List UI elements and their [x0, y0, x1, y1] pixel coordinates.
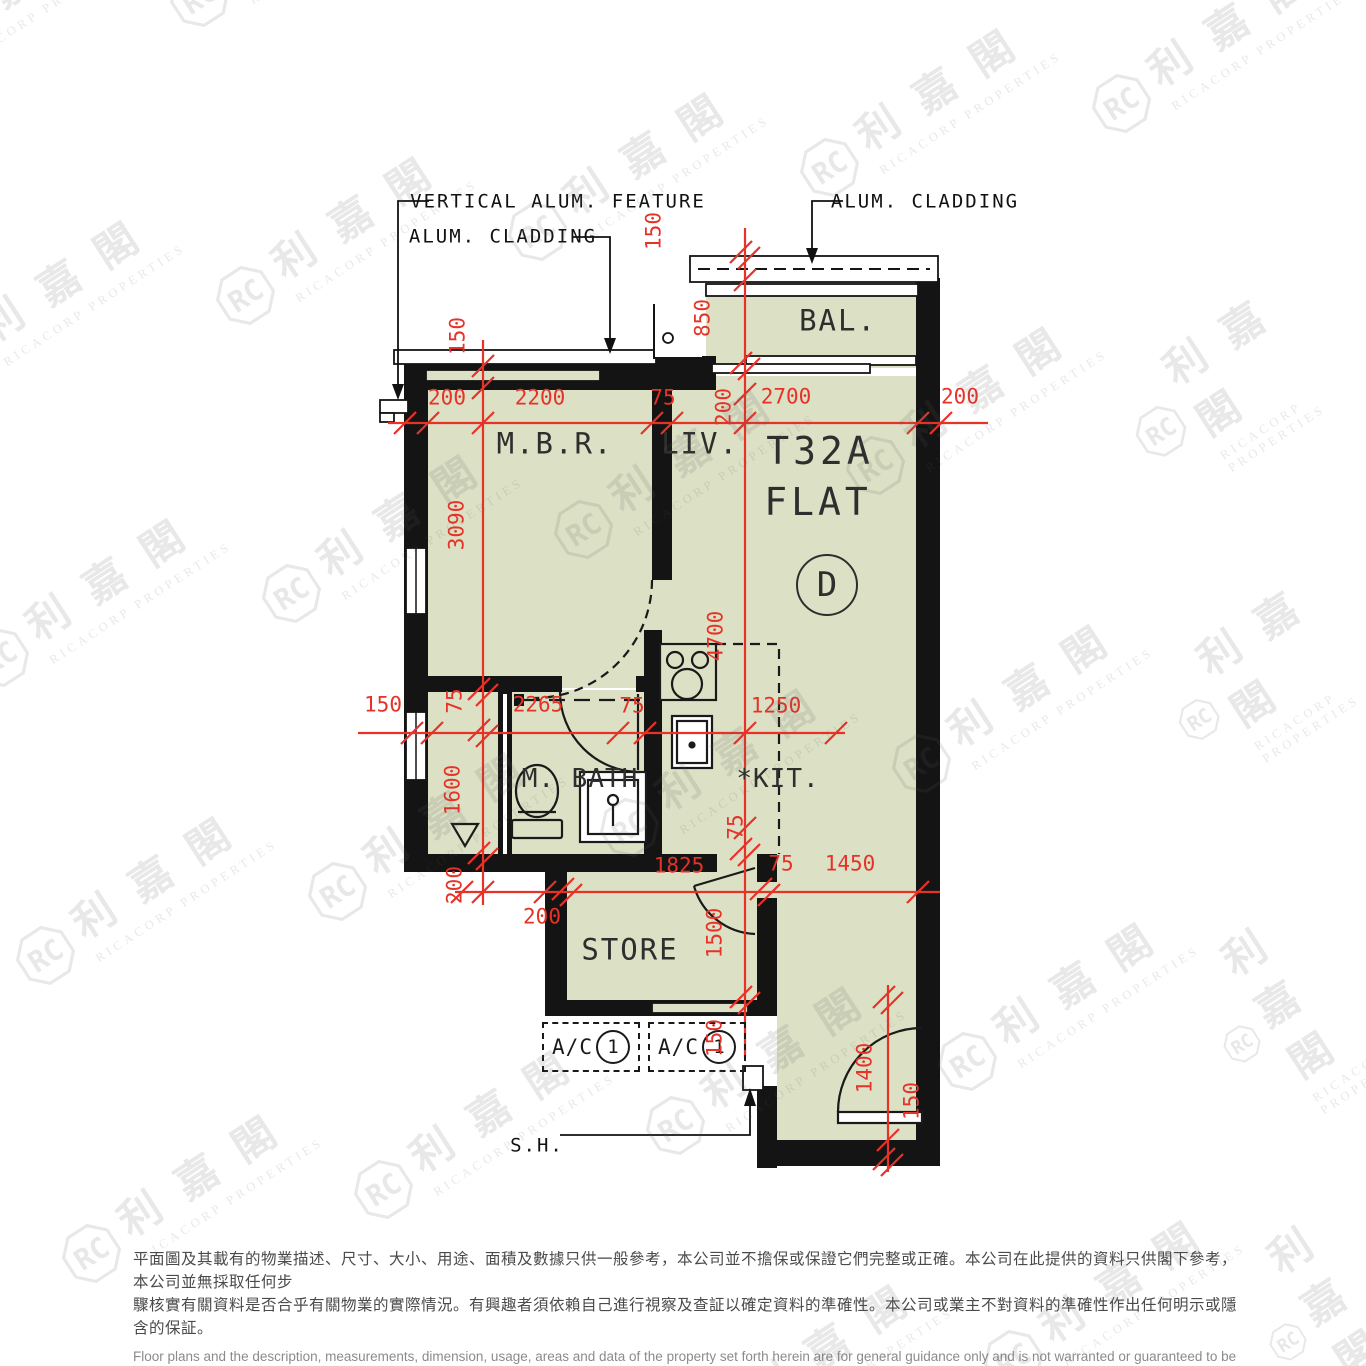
- dim-200-store: 200: [523, 907, 561, 928]
- disclaimer-zh-line1: 平面圖及其載有的物業描述、尺寸、大小、用途、面積及數據只供一般參考，本公司並不擔…: [133, 1248, 1243, 1294]
- dim-75-low: 75: [768, 854, 793, 875]
- label-sh: S.H.: [510, 1137, 564, 1156]
- wall-mbr-divider: [652, 388, 672, 580]
- dim-1600: 1600: [443, 765, 464, 816]
- wall-right-main: [916, 278, 940, 1164]
- dim-75-top: 75: [650, 388, 675, 409]
- dim-200-topmid: 200: [714, 388, 735, 426]
- unit-letter-badge: D: [796, 554, 858, 616]
- room-label-bal: BAL.: [799, 307, 877, 336]
- dim-3090: 3090: [447, 500, 468, 551]
- dim-200-lowleft: 200: [445, 866, 466, 904]
- disclaimer-en: Floor plans and the description, measure…: [133, 1347, 1243, 1366]
- dim-850-balcony: 850: [693, 299, 714, 337]
- disclaimer-zh-line2: 驟核實有關資料是否合乎有關物業的實際情況。有興趣者須依賴自己進行視察及查証以確定…: [133, 1294, 1243, 1340]
- dim-150-mid: 150: [364, 695, 402, 716]
- dim-150-top: 150: [644, 212, 665, 250]
- dim-2700: 2700: [761, 387, 812, 408]
- unit-flat-label: FLAT: [764, 483, 872, 521]
- ac-unit-2: A/C1: [648, 1022, 746, 1072]
- dim-1400: 1400: [855, 1043, 876, 1094]
- dim-1250: 1250: [751, 696, 802, 717]
- dim-1825: 1825: [654, 856, 705, 877]
- dim-150-ac: 150: [705, 1019, 726, 1057]
- dim-75-midleft: 75: [445, 688, 466, 713]
- room-label-kit: *KIT.: [736, 766, 819, 792]
- floor-plan-page: VERTICAL ALUM. FEATURE ALUM. CLADDING AL…: [0, 0, 1366, 1366]
- dim-75-kitchen: 75: [726, 814, 747, 839]
- dim-200-topright: 200: [941, 387, 979, 408]
- vertical-alum-feature-box: [380, 400, 408, 413]
- dim-4700: 4700: [706, 611, 727, 662]
- dim-75-midright: 75: [619, 696, 644, 717]
- cladding-strip: [394, 350, 656, 364]
- label-alum-cladding-left: ALUM. CLADDING: [409, 228, 597, 247]
- unit-block-label: T32A: [766, 432, 874, 470]
- ac-unit-1: A/C1: [542, 1022, 640, 1072]
- dim-200-topleft: 200: [428, 388, 466, 409]
- dim-2200: 2200: [515, 388, 566, 409]
- disclaimer: 平面圖及其載有的物業描述、尺寸、大小、用途、面積及數據只供一般參考，本公司並不擔…: [133, 1248, 1243, 1366]
- arrow-down-icon: [392, 384, 404, 400]
- wall-store-right: [757, 898, 777, 1016]
- dim-1450: 1450: [825, 854, 876, 875]
- dim-1500: 1500: [705, 908, 726, 959]
- room-label-liv: LIV.: [661, 430, 739, 459]
- dim-2265: 2265: [513, 695, 564, 716]
- label-vertical-alum-feature: VERTICAL ALUM. FEATURE: [410, 193, 706, 212]
- label-alum-cladding-right: ALUM. CLADDING: [831, 193, 1019, 212]
- room-label-mbr: M.B.R.: [497, 430, 614, 459]
- wall-store-left: [545, 856, 567, 1016]
- dim-150-wall: 150: [448, 317, 469, 355]
- room-label-store: STORE: [581, 936, 678, 965]
- sh-box: [743, 1066, 763, 1090]
- wall-bottom: [757, 1140, 940, 1166]
- room-label-mbath: M. BATH: [522, 766, 639, 792]
- dim-150-entrance: 150: [902, 1082, 923, 1120]
